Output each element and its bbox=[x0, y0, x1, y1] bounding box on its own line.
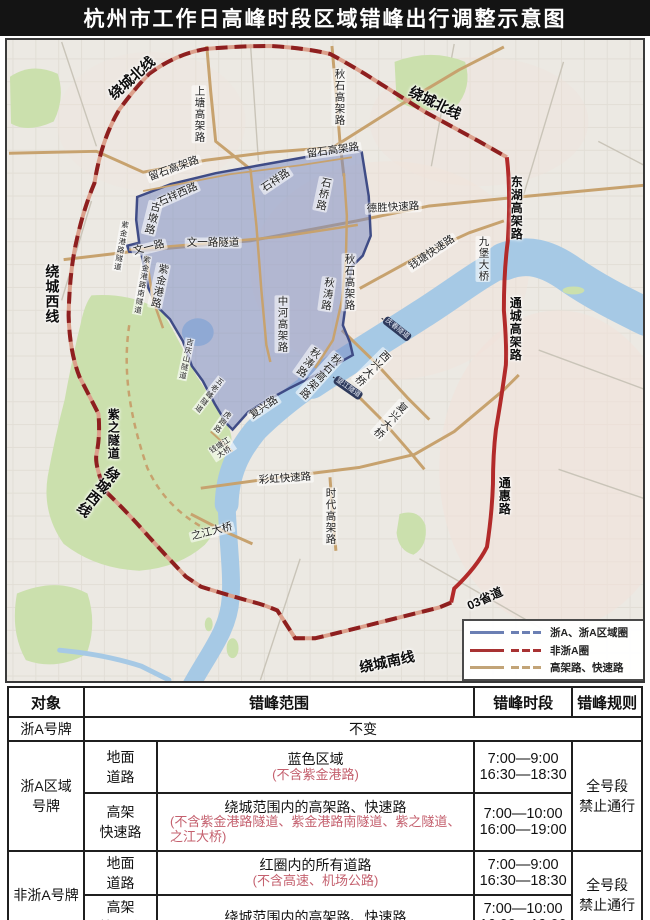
legend-row: 浙A、浙A区域圈 bbox=[470, 625, 637, 640]
page-title: 杭州市工作日高峰时段区域错峰出行调整示意图 bbox=[84, 3, 567, 33]
scope-text: 蓝色区域 bbox=[160, 751, 471, 768]
legend-dashed-line bbox=[511, 649, 541, 652]
row-zhea: 浙A号牌 不变 bbox=[8, 717, 642, 741]
header-target: 对象 bbox=[8, 687, 84, 717]
header-scope: 错峰范围 bbox=[84, 687, 474, 717]
scope-note: (不含紫金港路隧道、紫金港路南隧道、紫之隧道、之江大桥) bbox=[160, 815, 471, 845]
map-legend: 浙A、浙A区域圈非浙A圈高架路、快速路 bbox=[462, 619, 645, 681]
legend-row: 非浙A圈 bbox=[470, 643, 637, 658]
legend-solid-line bbox=[470, 631, 504, 634]
title-bar: 杭州市工作日高峰时段区域错峰出行调整示意图 bbox=[0, 0, 650, 36]
map-container: 绕城北线绕城北线绕城西线绕城西线绕城南线紫之隧道东湖高架路通城高架路通惠路03省… bbox=[5, 38, 645, 683]
legend-solid-line bbox=[470, 666, 504, 669]
row-area-elevated: 高架 快速路 绕城范围内的高架路、快速路 (不含紫金港路隧道、紫金港路南隧道、紫… bbox=[8, 793, 642, 851]
plate-nonzhea: 非浙A号牌 bbox=[8, 851, 84, 920]
row-area-ground: 浙A区域 号牌 地面 道路 蓝色区域 (不含紫金港路) 7:00—9:00 16… bbox=[8, 741, 642, 793]
header-rule: 错峰规则 bbox=[572, 687, 642, 717]
area-ground-scope: 蓝色区域 (不含紫金港路) bbox=[157, 741, 474, 793]
scope-text: 绕城范围内的高架路、快速路 bbox=[160, 909, 471, 920]
zhea-scope: 不变 bbox=[84, 717, 642, 741]
nonzhea-ground-scope: 红圈内的所有道路 (不含高速、机场公路) bbox=[157, 851, 474, 895]
scope-note: (不含高速、机场公路) bbox=[160, 874, 471, 889]
legend-dashed-line bbox=[511, 631, 541, 634]
area-elevated-type: 高架 快速路 bbox=[84, 793, 157, 851]
legend-label: 高架路、快速路 bbox=[550, 660, 624, 675]
area-elevated-time: 7:00—10:00 16:00—19:00 bbox=[474, 793, 572, 851]
plate-zhea: 浙A号牌 bbox=[8, 717, 84, 741]
area-rule: 全号段 禁止通行 bbox=[572, 741, 642, 851]
legend-dashed-line bbox=[511, 666, 541, 669]
row-nonzhea-ground: 非浙A号牌 地面 道路 红圈内的所有道路 (不含高速、机场公路) 7:00—9:… bbox=[8, 851, 642, 895]
scope-note: (不含紫金港路) bbox=[160, 768, 471, 783]
area-ground-time: 7:00—9:00 16:30—18:30 bbox=[474, 741, 572, 793]
scope-text: 绕城范围内的高架路、快速路 bbox=[160, 799, 471, 816]
nonzhea-elevated-scope: 绕城范围内的高架路、快速路 bbox=[157, 895, 474, 920]
legend-row: 高架路、快速路 bbox=[470, 660, 637, 675]
plate-area: 浙A区域 号牌 bbox=[8, 741, 84, 851]
nonzhea-elevated-type: 高架 快速路 bbox=[84, 895, 157, 920]
nonzhea-elevated-time: 7:00—10:00 16:00—19:00 bbox=[474, 895, 572, 920]
legend-label: 非浙A圈 bbox=[550, 643, 589, 658]
restriction-table-wrap: 对象 错峰范围 错峰时段 错峰规则 浙A号牌 不变 浙A区域 号牌 地面 道路 … bbox=[7, 686, 643, 914]
page: 杭州市工作日高峰时段区域错峰出行调整示意图 bbox=[0, 0, 650, 920]
scope-text: 红圈内的所有道路 bbox=[160, 857, 471, 874]
header-time: 错峰时段 bbox=[474, 687, 572, 717]
nonzhea-rule: 全号段 禁止通行 bbox=[572, 851, 642, 920]
nonzhea-ground-type: 地面 道路 bbox=[84, 851, 157, 895]
table-header-row: 对象 错峰范围 错峰时段 错峰规则 bbox=[8, 687, 642, 717]
restriction-table: 对象 错峰范围 错峰时段 错峰规则 浙A号牌 不变 浙A区域 号牌 地面 道路 … bbox=[7, 686, 643, 920]
nonzhea-ground-time: 7:00—9:00 16:30—18:30 bbox=[474, 851, 572, 895]
legend-solid-line bbox=[470, 649, 504, 652]
area-ground-type: 地面 道路 bbox=[84, 741, 157, 793]
legend-label: 浙A、浙A区域圈 bbox=[550, 625, 628, 640]
row-nonzhea-elevated: 高架 快速路 绕城范围内的高架路、快速路 7:00—10:00 16:00—19… bbox=[8, 895, 642, 920]
area-elevated-scope: 绕城范围内的高架路、快速路 (不含紫金港路隧道、紫金港路南隧道、紫之隧道、之江大… bbox=[157, 793, 474, 851]
map-svg bbox=[7, 40, 643, 681]
